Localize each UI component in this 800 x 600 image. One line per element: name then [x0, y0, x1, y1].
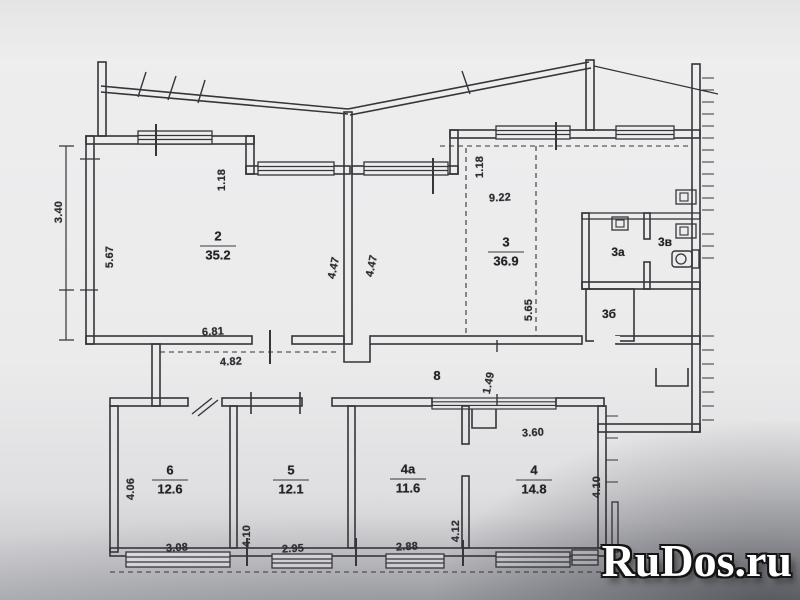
room-4-label: 4 14.8: [516, 464, 552, 497]
room-number: 3в: [658, 235, 672, 249]
dim-room5-height: 4.10: [241, 525, 253, 547]
toilet-icon: [672, 250, 699, 268]
room-area: 12.1: [273, 483, 309, 497]
room-number: 5: [273, 464, 309, 478]
room-area: 35.2: [200, 249, 236, 263]
fraction-line: [273, 480, 309, 481]
corridor-walls: [86, 336, 700, 432]
fraction-line: [516, 480, 552, 481]
room-3v-label: 3в: [658, 235, 672, 249]
dim-room6-height: 4.06: [125, 478, 137, 500]
room-number: 4: [516, 464, 552, 478]
floorplan-photo: 2 35.2 3 36.9 3а 3в 3б 6 12.6 5 12.1 4а …: [0, 0, 800, 600]
room-2-label: 2 35.2: [200, 230, 236, 263]
watermark: RuDos.ru: [602, 534, 792, 587]
fixture-icon: [676, 190, 696, 204]
room-number: 2: [200, 230, 236, 244]
room-number: 4а: [390, 463, 426, 477]
room-area: 11.6: [390, 482, 426, 496]
floorplan-drawing: [0, 0, 800, 600]
room-3b-label: 3б: [602, 307, 616, 321]
dim-room3-step: 1.18: [474, 156, 486, 178]
dim-left-outer: 3.40: [53, 201, 65, 223]
dim-room4-top: 3.60: [522, 426, 545, 439]
dim-room6-width: 3.08: [166, 541, 189, 554]
dim-room5-width: 2.95: [282, 542, 305, 555]
fixture-icon: [676, 224, 696, 238]
doorway-notch-room3: [344, 344, 370, 362]
main-walls: [86, 64, 700, 432]
fraction-line: [488, 252, 524, 253]
room-3a-label: 3а: [611, 245, 624, 259]
room-area: 12.6: [152, 483, 188, 497]
dim-room3-depth: 5.65: [523, 299, 535, 321]
room-6-label: 6 12.6: [152, 464, 188, 497]
fraction-line: [152, 480, 188, 481]
dim-room2-step: 1.18: [216, 169, 228, 191]
dim-room2-height: 5.67: [104, 246, 116, 268]
windows-top: [138, 126, 674, 175]
dim-room2-bottom: 6.81: [202, 325, 225, 338]
wall-hatching-room4: [606, 416, 618, 482]
dim-room3-top: 9.22: [489, 191, 512, 204]
room-4a-label: 4а 11.6: [390, 463, 426, 496]
entrance-notch: [656, 368, 688, 386]
room-number: 3а: [611, 245, 624, 259]
dim-hall-width: 4.82: [220, 355, 243, 368]
room-number: 3б: [602, 307, 616, 321]
dim-room4-height: 4.10: [591, 476, 603, 498]
dim-room4a-width: 2.88: [396, 540, 419, 553]
corridor-8-label: 8: [433, 369, 440, 383]
room-area: 14.8: [516, 483, 552, 497]
balcony-tick-marks: [138, 71, 470, 103]
sanitary-block: [582, 190, 700, 343]
fraction-line: [200, 246, 236, 247]
room-number: 6: [152, 464, 188, 478]
room-number: 3: [488, 236, 524, 250]
wall-hatching-right: [702, 78, 714, 420]
dim-room4a-height: 4.12: [450, 520, 462, 542]
fraction-line: [390, 479, 426, 480]
room-3-label: 3 36.9: [488, 236, 524, 269]
doorway-notch-room4: [472, 409, 496, 428]
windows-bottom: [126, 550, 598, 568]
room-area: 36.9: [488, 255, 524, 269]
balcony-outline: [98, 60, 718, 136]
room-5-label: 5 12.1: [273, 464, 309, 497]
room-number: 8: [433, 369, 440, 383]
